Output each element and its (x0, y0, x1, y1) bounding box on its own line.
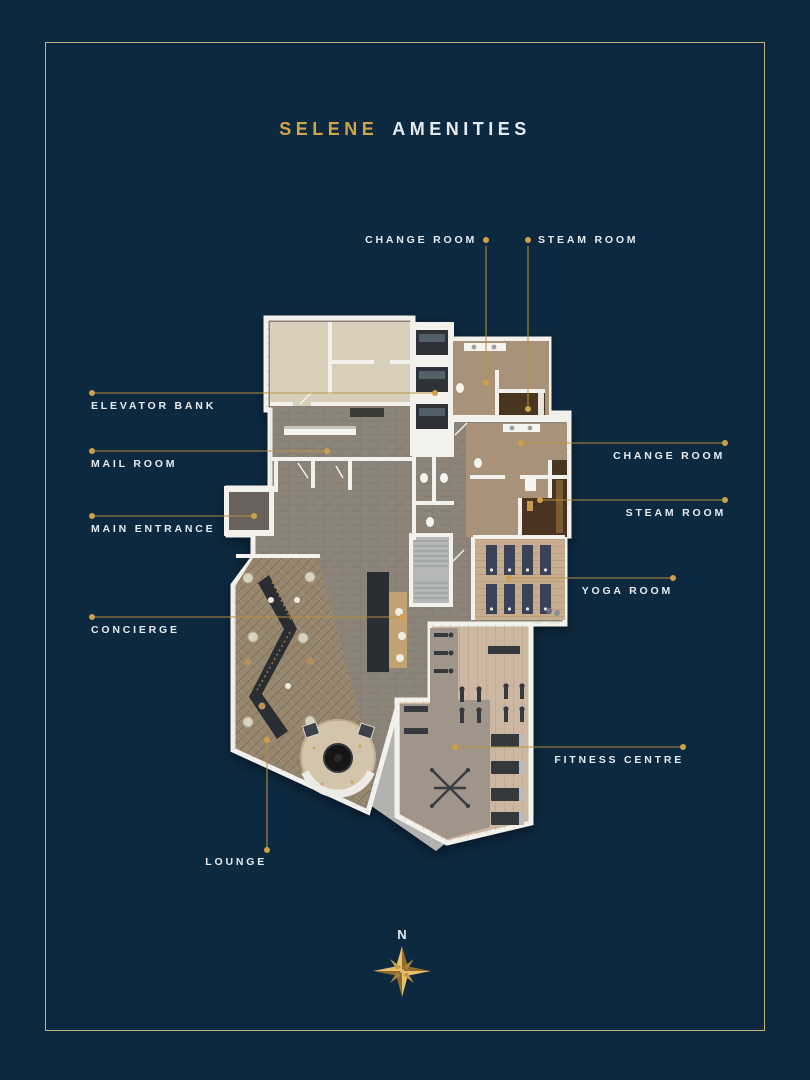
label-fitness-centre: FITNESS CENTRE (554, 754, 684, 766)
label-elevator-bank: ELEVATOR BANK (91, 400, 216, 412)
fire-pit-seating (301, 720, 375, 794)
label-main-entrance: MAIN ENTRANCE (91, 523, 215, 535)
compass-rose (373, 946, 431, 997)
label-steam-room-right: STEAM ROOM (626, 507, 726, 519)
compass-north-label: N (382, 927, 422, 942)
elevator-shaft (416, 330, 448, 429)
change-room-2 (466, 423, 567, 537)
corridor-bench (350, 408, 384, 417)
label-mail-room: MAIL ROOM (91, 458, 177, 470)
floor-plan (224, 318, 569, 851)
change-room-1 (453, 341, 549, 418)
label-concierge: CONCIERGE (91, 624, 180, 636)
label-steam-room-top: STEAM ROOM (538, 234, 638, 246)
elevator-bank (410, 322, 454, 456)
label-yoga-room: YOGA ROOM (582, 585, 673, 597)
label-change-room-right: CHANGE ROOM (613, 450, 725, 462)
label-change-room-top: CHANGE ROOM (365, 234, 477, 246)
label-lounge: LOUNGE (205, 856, 267, 868)
amenities-poster: SELENEAMENITIES (0, 0, 810, 1080)
floor-plan-canvas (0, 0, 810, 1080)
stairwell (409, 533, 453, 607)
entrance-vestibule (224, 486, 274, 536)
